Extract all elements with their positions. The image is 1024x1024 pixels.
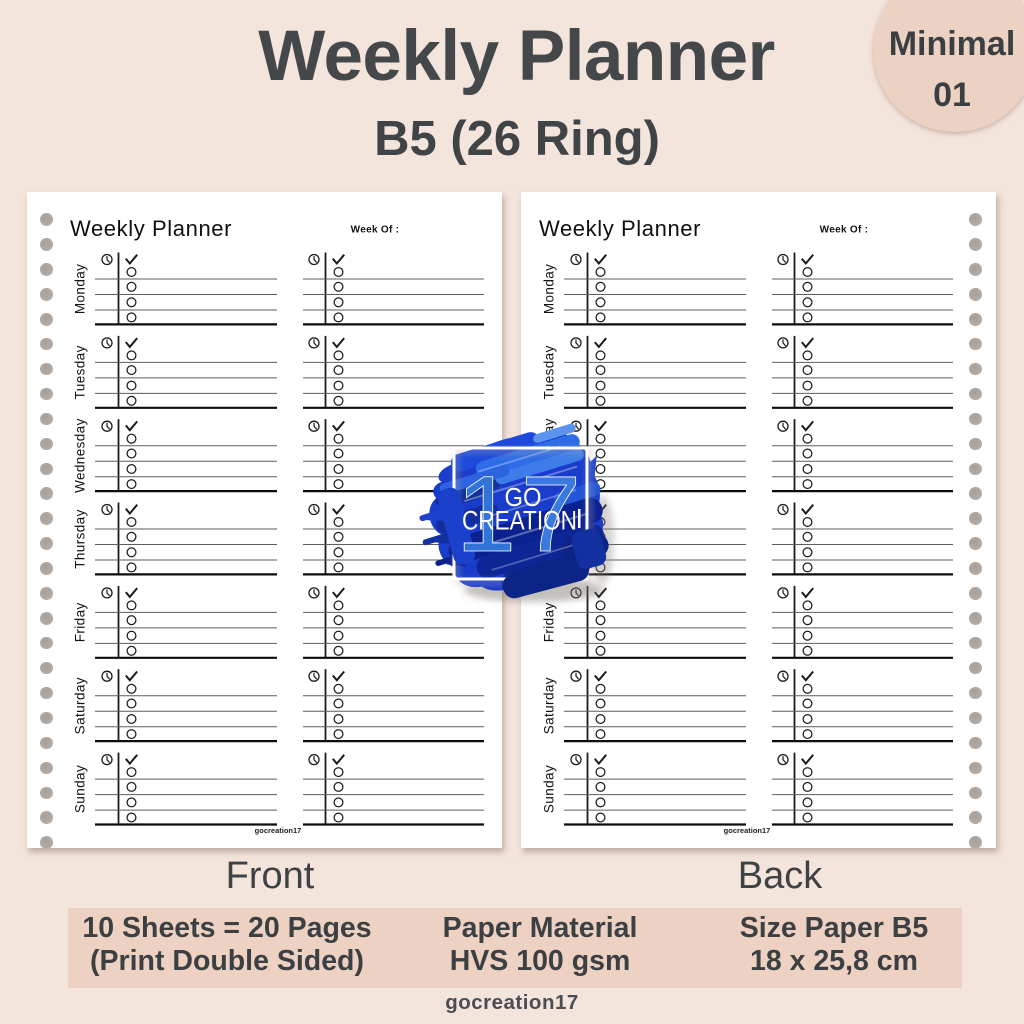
svg-text:Saturday: Saturday (73, 677, 88, 734)
svg-text:Thursday: Thursday (73, 509, 88, 568)
svg-text:gocreation17: gocreation17 (255, 826, 302, 835)
svg-text:Week Of :: Week Of : (351, 225, 400, 236)
svg-text:gocreation17: gocreation17 (724, 826, 771, 835)
svg-text:Tuesday: Tuesday (542, 345, 557, 399)
svg-text:Weekly Planner: Weekly Planner (539, 216, 701, 241)
svg-text:Saturday: Saturday (542, 677, 557, 734)
svg-text:Week Of :: Week Of : (820, 225, 869, 236)
svg-text:Monday: Monday (73, 264, 88, 314)
svg-text:Tuesday: Tuesday (73, 345, 88, 399)
svg-text:Weekly Planner: Weekly Planner (70, 216, 232, 241)
svg-text:CREATION: CREATION (462, 506, 577, 536)
svg-text:Sunday: Sunday (542, 765, 557, 813)
svg-text:Wednesday: Wednesday (73, 418, 88, 493)
svg-text:Sunday: Sunday (73, 765, 88, 813)
svg-text:Friday: Friday (73, 602, 88, 642)
svg-text:Monday: Monday (542, 264, 557, 314)
